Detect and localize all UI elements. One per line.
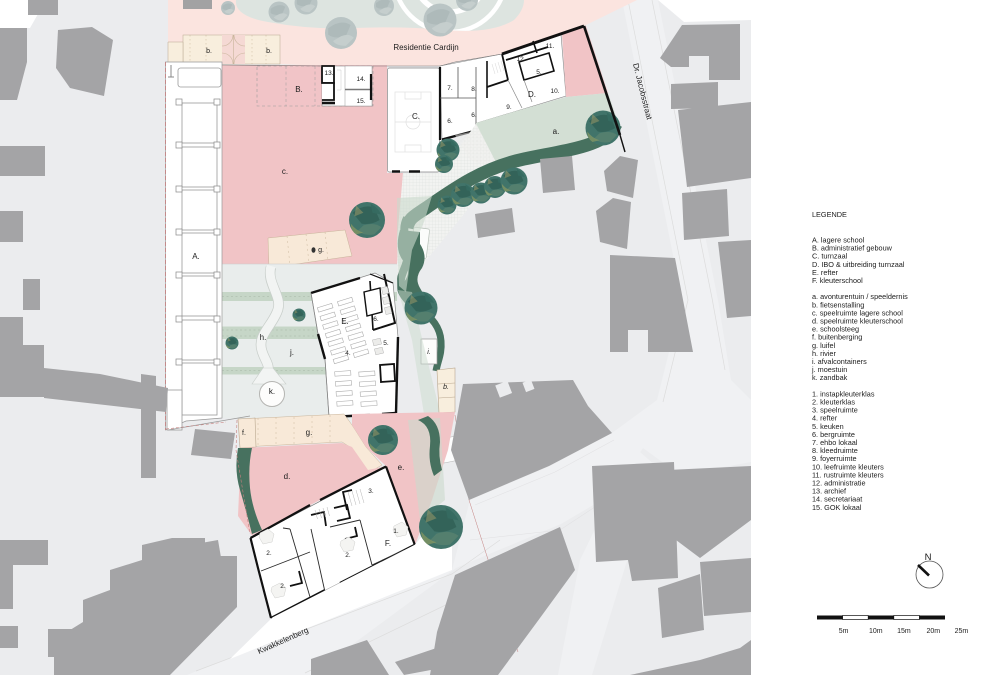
svg-text:5.: 5.: [536, 69, 542, 76]
svg-text:LEGENDE: LEGENDE: [812, 210, 847, 219]
svg-text:d.: d.: [284, 472, 291, 481]
svg-text:b.: b.: [206, 48, 212, 55]
svg-text:h.: h.: [260, 333, 267, 342]
svg-text:c.: c.: [282, 167, 288, 176]
svg-text:11.: 11.: [546, 43, 555, 50]
svg-text:6.: 6.: [373, 316, 379, 323]
svg-text:k. zandbak: k. zandbak: [812, 373, 848, 382]
svg-text:e.: e.: [398, 463, 405, 472]
svg-text:10m: 10m: [869, 628, 883, 635]
svg-text:3.: 3.: [368, 488, 374, 495]
svg-text:2.: 2.: [345, 552, 351, 559]
svg-text:8.: 8.: [471, 86, 477, 93]
svg-text:2.: 2.: [280, 583, 286, 590]
svg-text:15. GOK lokaal: 15. GOK lokaal: [812, 503, 862, 512]
svg-text:E.: E.: [341, 317, 349, 326]
svg-text:9.: 9.: [506, 104, 512, 111]
svg-text:A.: A.: [192, 252, 200, 261]
svg-text:5.: 5.: [383, 340, 389, 347]
svg-text:Residentie Cardijn: Residentie Cardijn: [393, 43, 458, 52]
svg-text:k.: k.: [269, 387, 275, 396]
svg-text:F. kleuterschool: F. kleuterschool: [812, 276, 863, 285]
svg-text:15.: 15.: [356, 98, 365, 105]
svg-text:i.: i.: [427, 349, 431, 356]
svg-text:10.: 10.: [550, 88, 559, 95]
svg-text:N: N: [925, 552, 932, 563]
svg-text:2.: 2.: [266, 550, 272, 557]
svg-text:6.: 6.: [471, 112, 477, 119]
svg-text:12.: 12.: [516, 56, 525, 63]
svg-text:13.: 13.: [324, 70, 333, 77]
svg-text:1.: 1.: [393, 528, 399, 535]
svg-text:B.: B.: [295, 85, 303, 94]
svg-text:7.: 7.: [447, 85, 453, 92]
svg-text:14.: 14.: [356, 76, 365, 83]
svg-text:a.: a.: [553, 127, 560, 136]
svg-text:25m: 25m: [955, 628, 969, 635]
svg-text:6.: 6.: [447, 118, 453, 125]
svg-text:5m: 5m: [839, 628, 849, 635]
svg-text:b.: b.: [443, 384, 449, 391]
svg-text:g.: g.: [306, 428, 313, 437]
svg-text:4.: 4.: [345, 350, 351, 357]
svg-text:g.: g.: [318, 247, 324, 254]
svg-text:F.: F.: [385, 539, 391, 548]
svg-text:C.: C.: [412, 112, 420, 121]
svg-text:j.: j.: [289, 348, 294, 357]
svg-text:15m: 15m: [897, 628, 911, 635]
svg-text:b.: b.: [266, 48, 272, 55]
svg-text:20m: 20m: [926, 628, 940, 635]
svg-text:D.: D.: [528, 90, 536, 99]
svg-text:f.: f.: [242, 430, 246, 437]
